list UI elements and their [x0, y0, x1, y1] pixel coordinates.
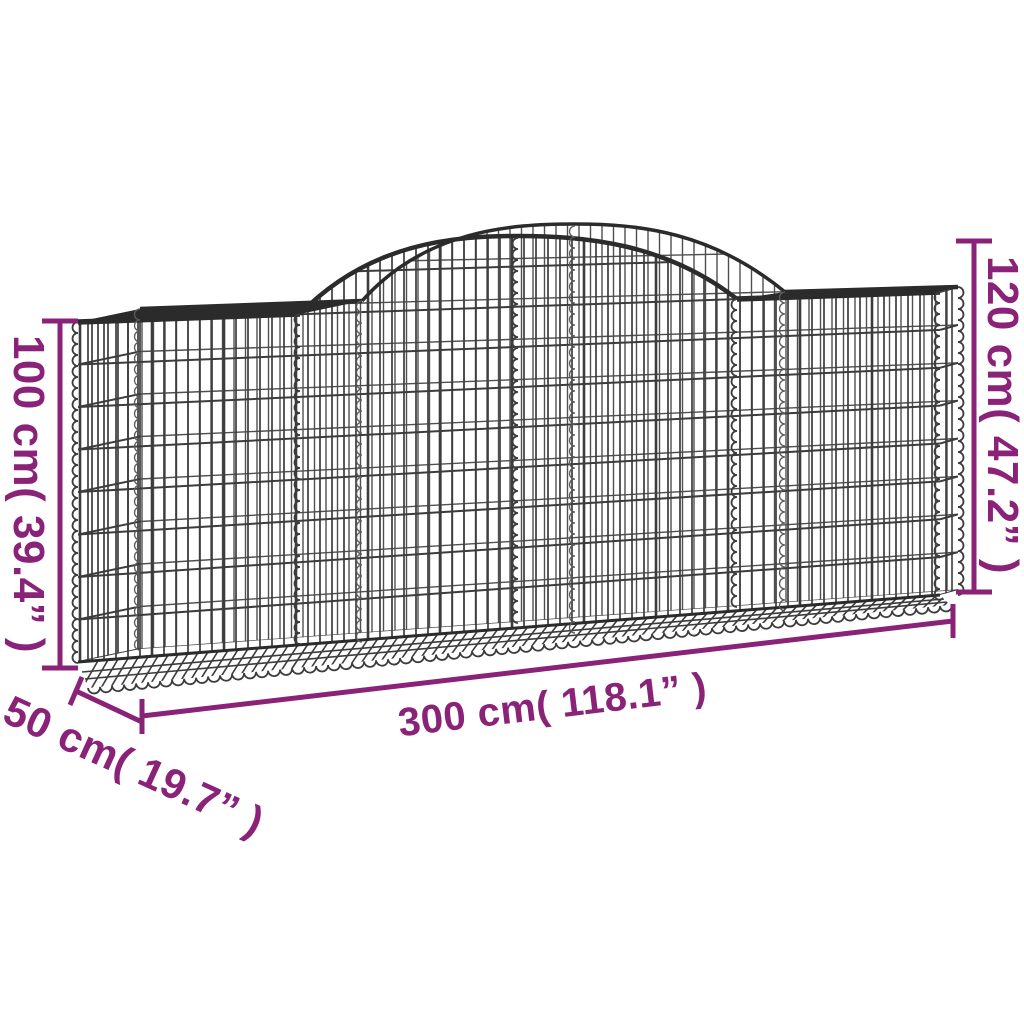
- height-right-label: 120 cm( 47.2” ): [978, 256, 1024, 574]
- dimension-height-right: 120 cm( 47.2” ): [956, 241, 1024, 592]
- width-bottom-label: 300 cm( 118.1” ): [396, 665, 709, 745]
- front-bottom-edge: [78, 595, 940, 662]
- basket-wireframe: [73, 211, 964, 693]
- height-left-label: 100 cm( 39.4” ): [4, 335, 53, 653]
- dimension-depth: 50 cm( 19.7” ): [0, 677, 271, 845]
- product-dimension-diagram: 100 cm( 39.4” ) 120 cm( 47.2” ) 300 cm( …: [0, 0, 1024, 1024]
- depth-label: 50 cm( 19.7” ): [0, 686, 271, 845]
- dimension-height-left: 100 cm( 39.4” ): [4, 321, 78, 668]
- left-end-mesh: [78, 300, 140, 670]
- gabion-dimension-diagram: 100 cm( 39.4” ) 120 cm( 47.2” ) 300 cm( …: [0, 0, 1024, 1024]
